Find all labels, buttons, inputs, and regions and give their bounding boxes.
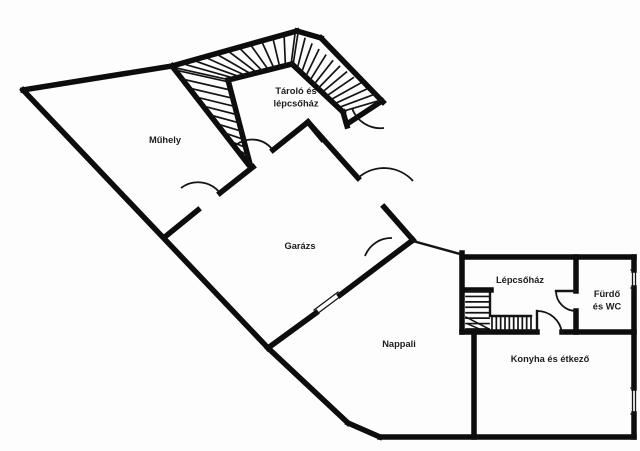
wall — [23, 66, 172, 90]
room-label-line: Nappali — [382, 339, 416, 349]
room-label-line: Lépcsőház — [496, 275, 544, 285]
stair-step — [273, 40, 280, 68]
door-arc — [556, 291, 576, 311]
room-label-garazs: Garázs — [284, 241, 315, 251]
room-label-tarolo: Tároló éslépcsőház — [274, 86, 319, 109]
wall — [268, 348, 348, 423]
wall — [268, 313, 316, 348]
room-label-line: Garázs — [284, 241, 315, 251]
stair-step — [327, 78, 353, 96]
room-label-line: Műhely — [149, 135, 182, 145]
wall — [348, 423, 380, 437]
room-label-line: Konyha és étkező — [511, 354, 590, 364]
stair-step — [340, 94, 374, 107]
wall — [166, 210, 198, 236]
room-label-line: lépcsőház — [274, 99, 319, 109]
floorplan-canvas: MűhelyTároló éslépcsőházGarázsNappaliLép… — [0, 0, 640, 451]
room-label-furdo: Fürdőés WC — [593, 289, 622, 312]
stair-step — [284, 37, 285, 66]
wall — [308, 122, 358, 178]
stair-step — [331, 83, 360, 99]
stair-step — [323, 72, 347, 92]
stair-step — [314, 61, 332, 84]
door-arc — [537, 311, 562, 333]
room-label-nappali: Nappali — [382, 339, 416, 349]
wall — [384, 207, 413, 240]
door-arc — [365, 238, 392, 256]
wall — [297, 31, 321, 38]
door-arc — [358, 168, 413, 181]
room-label-lepcsohaz: Lépcsőház — [496, 275, 544, 285]
stair-step — [310, 55, 326, 80]
wall — [273, 122, 308, 150]
door-arc — [236, 140, 272, 149]
room-label-line: Fürdő — [594, 289, 621, 299]
room-label-muhely: Műhely — [149, 135, 182, 145]
door-arc — [181, 182, 220, 193]
floor-plan: MűhelyTároló éslépcsőházGarázsNappaliLép… — [0, 0, 640, 451]
room-label-konyha: Konyha és étkező — [511, 354, 590, 364]
stair-step — [336, 89, 368, 104]
stair-step — [319, 67, 340, 89]
room-label-line: Tároló és — [275, 86, 316, 96]
stair-step — [249, 161, 250, 164]
room-label-line: és WC — [593, 302, 622, 312]
partition-wall — [413, 241, 460, 254]
wall — [220, 167, 253, 193]
wall — [340, 240, 413, 295]
